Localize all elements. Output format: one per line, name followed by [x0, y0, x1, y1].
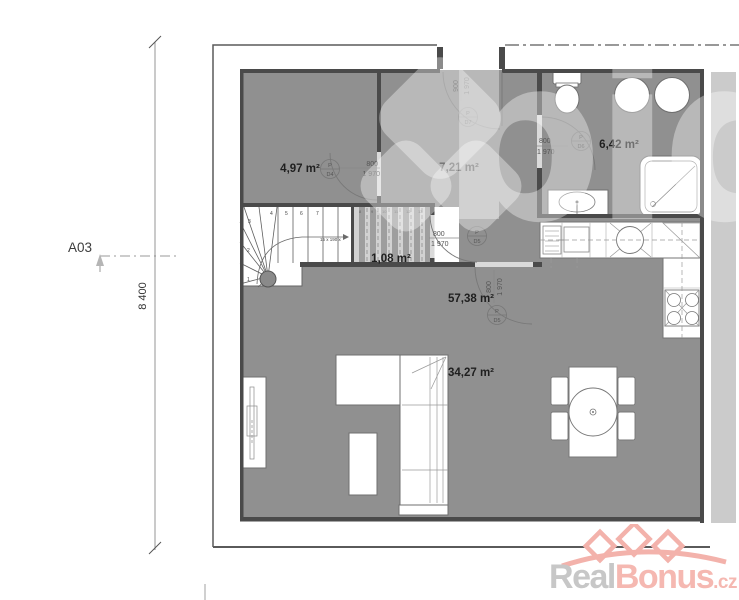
floor-room-top-left [242, 70, 380, 205]
section-marker-label: A03 [68, 240, 92, 255]
door-width: 900 [453, 80, 460, 92]
door-width: 800 [486, 281, 493, 293]
shower [640, 156, 702, 217]
door-code: D4 [326, 172, 333, 178]
svg-text:12: 12 [406, 209, 411, 214]
stair-dimension-note: 15 x 190 x [320, 237, 342, 242]
door-width: 800 [539, 138, 551, 145]
svg-text:2: 2 [247, 248, 250, 254]
room-label: 34,27 m² [448, 367, 494, 379]
door-width: 800 [433, 231, 445, 238]
adjacent-strip [711, 72, 736, 523]
door-tag: P [475, 230, 479, 236]
door-height: 1 970 [497, 278, 504, 296]
stair-newel-post [260, 271, 276, 287]
door-height: 1 970 [537, 149, 555, 156]
door-tag: P [328, 163, 332, 169]
door-tag: P [466, 111, 470, 117]
door-width: 800 [366, 161, 378, 168]
section-marker: A03 [68, 240, 180, 272]
dimension-line-left: 8 400 [137, 36, 161, 554]
svg-text:4: 4 [270, 211, 273, 217]
door-height: 1 970 [464, 77, 471, 95]
svg-text:10: 10 [382, 209, 387, 214]
room-label: 57,38 m² [448, 293, 494, 305]
door-code: D6 [577, 144, 584, 150]
coffee-table [349, 433, 377, 495]
toilet [553, 71, 581, 113]
svg-text:3: 3 [248, 219, 251, 225]
vanity-sink [548, 190, 608, 216]
logo-suffix-cz: .cz [713, 572, 737, 593]
svg-text:7: 7 [316, 211, 319, 217]
room-label: 4,97 m² [280, 163, 320, 175]
room-label: 1,08 m² [371, 253, 411, 265]
floor-plan-page: 800 1 970 P D4 900 1 970 P D7 800 1 970 … [0, 0, 739, 600]
door-code: D7 [464, 120, 471, 126]
door-code: D5 [473, 239, 480, 245]
svg-text:6: 6 [300, 211, 303, 217]
room-label: 7,21 m² [439, 162, 479, 174]
logo-part-real: Real [549, 558, 615, 596]
logo-part-bonus: Bonus [615, 558, 713, 596]
realbonus-wordmark: RealBonus.cz [549, 560, 737, 594]
room-label: 6,42 m² [599, 139, 639, 151]
door-tag: P [579, 135, 583, 141]
door-tag: P [495, 309, 499, 315]
dimension-value: 8 400 [137, 282, 149, 310]
door-code: D5 [493, 318, 500, 324]
dryer [655, 78, 690, 113]
floor-plan-drawing: 800 1 970 P D4 900 1 970 P D7 800 1 970 … [0, 0, 739, 600]
washer [615, 78, 650, 113]
realbonus-logo: RealBonus.cz [516, 524, 739, 596]
tv-bench [242, 377, 266, 468]
svg-text:1: 1 [247, 277, 250, 283]
svg-text:13: 13 [418, 209, 423, 214]
door-height: 1 970 [431, 241, 449, 248]
door-height: 1 970 [362, 171, 380, 178]
svg-text:5: 5 [285, 211, 288, 217]
